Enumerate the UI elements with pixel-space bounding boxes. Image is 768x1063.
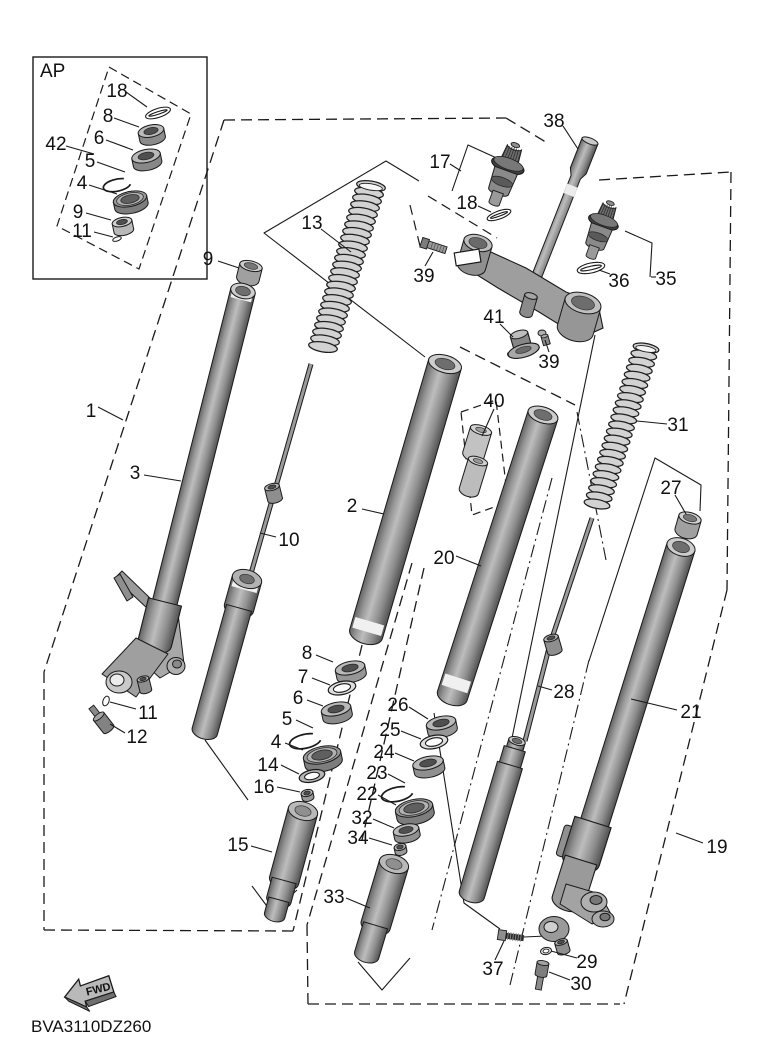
- svg-text:40: 40: [483, 391, 504, 412]
- svg-text:18: 18: [106, 81, 127, 102]
- svg-text:35: 35: [655, 269, 676, 290]
- svg-text:18: 18: [456, 193, 477, 214]
- svg-text:11: 11: [72, 221, 92, 242]
- svg-text:20: 20: [433, 548, 454, 569]
- svg-text:34: 34: [347, 828, 369, 849]
- svg-text:BVA3110DZ260: BVA3110DZ260: [31, 1017, 151, 1036]
- svg-text:5: 5: [282, 709, 293, 730]
- svg-text:24: 24: [373, 742, 395, 763]
- svg-text:16: 16: [253, 777, 274, 798]
- svg-text:38: 38: [543, 111, 564, 132]
- svg-text:9: 9: [73, 202, 84, 223]
- svg-text:36: 36: [608, 271, 629, 292]
- svg-text:4: 4: [271, 732, 282, 753]
- svg-text:7: 7: [298, 667, 309, 688]
- svg-text:22: 22: [356, 784, 377, 805]
- svg-text:17: 17: [429, 152, 450, 173]
- svg-text:15: 15: [227, 835, 248, 856]
- svg-text:23: 23: [366, 763, 387, 784]
- svg-text:11: 11: [138, 703, 158, 724]
- svg-text:19: 19: [706, 837, 727, 858]
- svg-text:14: 14: [257, 755, 279, 776]
- svg-text:AP: AP: [40, 61, 65, 82]
- svg-text:31: 31: [667, 415, 688, 436]
- svg-text:1: 1: [86, 401, 97, 422]
- svg-text:30: 30: [570, 974, 591, 995]
- svg-text:12: 12: [126, 727, 147, 748]
- svg-text:10: 10: [278, 530, 299, 551]
- svg-text:33: 33: [323, 887, 344, 908]
- svg-text:39: 39: [538, 352, 559, 373]
- svg-text:26: 26: [387, 695, 408, 716]
- svg-text:32: 32: [351, 808, 372, 829]
- svg-text:37: 37: [482, 959, 503, 980]
- svg-text:4: 4: [77, 173, 88, 194]
- svg-text:6: 6: [94, 128, 105, 149]
- svg-text:28: 28: [553, 682, 574, 703]
- svg-text:9: 9: [203, 249, 214, 270]
- svg-text:42: 42: [45, 134, 66, 155]
- svg-text:39: 39: [413, 266, 434, 287]
- svg-text:8: 8: [302, 643, 313, 664]
- svg-text:6: 6: [293, 688, 304, 709]
- svg-text:25: 25: [379, 720, 400, 741]
- svg-text:3: 3: [130, 463, 141, 484]
- svg-text:21: 21: [680, 702, 701, 723]
- svg-text:29: 29: [576, 952, 597, 973]
- svg-text:13: 13: [301, 213, 322, 234]
- svg-text:8: 8: [103, 106, 114, 127]
- svg-text:2: 2: [347, 496, 358, 517]
- svg-text:27: 27: [660, 478, 681, 499]
